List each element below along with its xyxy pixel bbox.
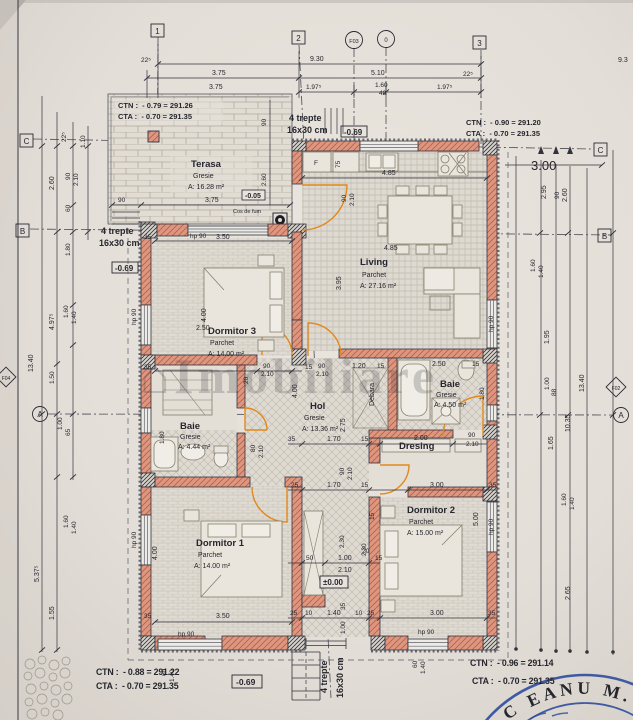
svg-text:1.80: 1.80 xyxy=(479,387,486,400)
svg-text:Dormitor 3: Dormitor 3 xyxy=(208,326,256,337)
svg-text:5.37⁵: 5.37⁵ xyxy=(34,565,41,582)
svg-text:B: B xyxy=(20,227,25,236)
svg-text:1.65: 1.65 xyxy=(548,436,555,450)
svg-text:15: 15 xyxy=(361,436,369,443)
svg-text:1.40: 1.40 xyxy=(538,265,545,278)
svg-text:⌂Imobiliare: ⌂Imobiliare xyxy=(140,348,438,404)
svg-text:C: C xyxy=(598,146,604,155)
svg-text:CTN : - 0.79 = 291.26: CTN : - 0.79 = 291.26 xyxy=(118,101,193,110)
svg-text:2.10: 2.10 xyxy=(347,467,354,480)
svg-text:1.00: 1.00 xyxy=(57,417,64,430)
svg-text:Parchet: Parchet xyxy=(198,552,222,559)
svg-text:2.65: 2.65 xyxy=(565,586,572,600)
svg-text:16x30 cm: 16x30 cm xyxy=(287,125,328,135)
svg-text:4 trepte: 4 trepte xyxy=(289,113,322,123)
svg-text:3.75: 3.75 xyxy=(212,70,226,77)
svg-text:hp 90: hp 90 xyxy=(190,233,207,240)
svg-text:10: 10 xyxy=(355,610,363,617)
svg-text:Baie: Baie xyxy=(180,421,200,432)
svg-text:4.97⁵: 4.97⁵ xyxy=(49,313,56,330)
svg-text:4 trepte: 4 trepte xyxy=(319,660,329,693)
svg-text:5.10: 5.10 xyxy=(371,70,385,77)
svg-text:90: 90 xyxy=(339,467,346,475)
svg-text:22⁵: 22⁵ xyxy=(463,71,473,78)
svg-text:1.60: 1.60 xyxy=(530,259,537,272)
svg-text:22⁵: 22⁵ xyxy=(141,57,151,64)
svg-text:2.60: 2.60 xyxy=(261,173,268,186)
svg-text:1.00: 1.00 xyxy=(544,377,551,390)
svg-text:22⁵: 22⁵ xyxy=(61,132,68,142)
svg-text:2.30: 2.30 xyxy=(339,535,346,548)
svg-text:4.00: 4.00 xyxy=(201,308,208,322)
svg-text:3.00: 3.00 xyxy=(531,158,556,173)
svg-text:B: B xyxy=(602,232,607,241)
svg-text:16x30 cm: 16x30 cm xyxy=(335,657,345,698)
svg-text:±0.00: ±0.00 xyxy=(323,578,344,587)
svg-text:2.60: 2.60 xyxy=(49,176,56,190)
svg-text:35: 35 xyxy=(488,610,496,617)
svg-text:3: 3 xyxy=(477,39,482,48)
svg-text:C: C xyxy=(24,137,30,146)
svg-text:Parchet: Parchet xyxy=(362,272,386,279)
svg-text:hp 90: hp 90 xyxy=(488,315,495,332)
svg-text:hp 90: hp 90 xyxy=(418,629,435,636)
svg-text:1.97⁵: 1.97⁵ xyxy=(306,84,322,91)
svg-text:1.80: 1.80 xyxy=(159,431,166,444)
svg-text:hp 90: hp 90 xyxy=(178,631,195,638)
svg-text:15: 15 xyxy=(472,361,480,368)
svg-text:Terasa: Terasa xyxy=(191,159,222,170)
svg-text:1.10: 1.10 xyxy=(80,135,87,148)
svg-text:CTN : - 0.90 = 291.20: CTN : - 0.90 = 291.20 xyxy=(466,118,541,127)
svg-text:F: F xyxy=(314,160,318,167)
svg-text:1.70: 1.70 xyxy=(327,482,341,489)
svg-text:35: 35 xyxy=(489,482,497,489)
svg-text:F04: F04 xyxy=(2,376,11,382)
svg-text:80: 80 xyxy=(250,444,257,452)
svg-text:Gresie: Gresie xyxy=(193,173,214,180)
svg-text:9.3: 9.3 xyxy=(618,57,628,64)
svg-text:A: 4.44 m²: A: 4.44 m² xyxy=(178,444,211,451)
svg-text:40: 40 xyxy=(379,90,387,97)
svg-text:2.10: 2.10 xyxy=(466,441,479,448)
svg-text:4.00: 4.00 xyxy=(152,546,159,560)
svg-text:A: A xyxy=(618,411,624,420)
svg-text:Parchet: Parchet xyxy=(210,340,234,347)
svg-text:90: 90 xyxy=(468,432,476,439)
svg-text:3.75: 3.75 xyxy=(205,197,219,204)
svg-text:1.60: 1.60 xyxy=(561,493,568,506)
svg-text:13.40: 13.40 xyxy=(28,354,35,372)
svg-text:3.95: 3.95 xyxy=(336,276,343,290)
svg-text:CTN : - 0.96 = 291.14: CTN : - 0.96 = 291.14 xyxy=(470,658,554,668)
svg-text:3.00: 3.00 xyxy=(430,482,444,489)
svg-text:F03: F03 xyxy=(349,39,358,45)
svg-text:35: 35 xyxy=(144,613,152,620)
svg-text:CTN : - 0.88 = 291.22: CTN : - 0.88 = 291.22 xyxy=(96,667,180,677)
svg-text:60: 60 xyxy=(65,204,72,212)
svg-text:25: 25 xyxy=(367,610,375,617)
svg-text:75: 75 xyxy=(335,160,342,168)
svg-text:A: 27.16 m²: A: 27.16 m² xyxy=(360,283,397,290)
svg-text:2.60: 2.60 xyxy=(562,188,569,202)
svg-text:2: 2 xyxy=(296,34,301,43)
svg-text:1.60: 1.60 xyxy=(63,305,70,318)
svg-text:Cos de fum: Cos de fum xyxy=(233,209,262,215)
svg-text:50: 50 xyxy=(306,555,314,562)
svg-text:2.10: 2.10 xyxy=(349,193,356,206)
svg-text:4 trepte: 4 trepte xyxy=(101,226,134,236)
svg-text:1.60: 1.60 xyxy=(375,82,388,89)
svg-text:1.40: 1.40 xyxy=(71,521,78,534)
svg-text:15: 15 xyxy=(361,482,369,489)
svg-text:-0.69: -0.69 xyxy=(115,264,134,273)
svg-text:-0.69: -0.69 xyxy=(236,677,256,687)
svg-text:88: 88 xyxy=(551,388,558,396)
svg-text:1.60: 1.60 xyxy=(63,515,70,528)
svg-text:hp 90: hp 90 xyxy=(131,531,138,548)
svg-text:65: 65 xyxy=(65,428,72,436)
svg-text:35: 35 xyxy=(144,234,152,241)
svg-text:1.00: 1.00 xyxy=(338,555,352,562)
svg-text:10: 10 xyxy=(305,610,313,617)
svg-text:Living: Living xyxy=(360,257,388,268)
svg-text:1.70: 1.70 xyxy=(327,436,341,443)
svg-text:hp 90: hp 90 xyxy=(131,308,138,325)
svg-text:5.00: 5.00 xyxy=(473,512,480,526)
svg-text:35: 35 xyxy=(340,602,347,610)
svg-text:1.55: 1.55 xyxy=(49,606,56,620)
svg-text:90: 90 xyxy=(554,191,561,199)
svg-text:2.10: 2.10 xyxy=(73,173,80,186)
svg-text:Gresie: Gresie xyxy=(436,392,457,399)
svg-text:Dormitor 2: Dormitor 2 xyxy=(407,505,455,516)
svg-text:A: A xyxy=(37,410,43,419)
svg-text:CTA : - 0.70 = 291.35: CTA : - 0.70 = 291.35 xyxy=(96,681,179,691)
svg-text:1.40: 1.40 xyxy=(569,497,576,510)
svg-text:1.50: 1.50 xyxy=(49,371,56,384)
svg-text:1.40: 1.40 xyxy=(71,311,78,324)
svg-text:1: 1 xyxy=(155,27,160,36)
svg-text:1.97⁵: 1.97⁵ xyxy=(437,84,453,91)
svg-text:9.30: 9.30 xyxy=(310,56,324,63)
svg-text:Baie: Baie xyxy=(440,379,460,390)
svg-text:2.95: 2.95 xyxy=(541,185,548,199)
svg-text:25: 25 xyxy=(290,610,298,617)
svg-text:CTA : - 0.70 = 291.35: CTA : - 0.70 = 291.35 xyxy=(472,676,555,686)
svg-text:-0.05: -0.05 xyxy=(245,193,261,200)
svg-text:Parchet: Parchet xyxy=(409,519,433,526)
svg-text:Gresie: Gresie xyxy=(304,415,325,422)
svg-text:2.10: 2.10 xyxy=(258,445,265,458)
svg-text:1.80: 1.80 xyxy=(65,243,72,256)
svg-text:15: 15 xyxy=(375,555,383,562)
svg-text:1.95: 1.95 xyxy=(544,330,551,344)
svg-text:Gresie: Gresie xyxy=(180,434,201,441)
svg-text:A: 4.50 m²: A: 4.50 m² xyxy=(434,402,467,409)
svg-text:60: 60 xyxy=(412,660,419,668)
svg-text:2.10: 2.10 xyxy=(338,567,352,574)
svg-text:A: 16.28 m²: A: 16.28 m² xyxy=(188,184,225,191)
svg-text:A: 14.00 m²: A: 14.00 m² xyxy=(194,563,231,570)
svg-text:1.40: 1.40 xyxy=(327,610,341,617)
svg-text:10.35: 10.35 xyxy=(565,414,572,432)
svg-text:1.40: 1.40 xyxy=(420,661,427,674)
svg-text:CTA : - 0.70 = 291.35: CTA : - 0.70 = 291.35 xyxy=(466,129,540,138)
svg-text:25: 25 xyxy=(291,482,299,489)
svg-text:hp 90: hp 90 xyxy=(488,518,495,535)
svg-text:3.50: 3.50 xyxy=(216,613,230,620)
svg-text:3.00: 3.00 xyxy=(430,610,444,617)
svg-text:A: 15.00 m²: A: 15.00 m² xyxy=(407,530,444,537)
svg-text:90: 90 xyxy=(261,118,268,126)
svg-text:A: 13.36 m²: A: 13.36 m² xyxy=(302,426,339,433)
svg-text:35: 35 xyxy=(288,436,296,443)
svg-text:-0.69: -0.69 xyxy=(344,128,363,137)
svg-text:4.85: 4.85 xyxy=(384,245,398,252)
svg-text:2.30: 2.30 xyxy=(361,543,368,556)
svg-text:4.85: 4.85 xyxy=(382,170,396,177)
svg-text:15: 15 xyxy=(369,512,376,520)
svg-text:1.00: 1.00 xyxy=(340,621,347,634)
svg-text:Dormitor 1: Dormitor 1 xyxy=(196,538,245,549)
svg-text:90: 90 xyxy=(341,194,348,202)
svg-text:13.40: 13.40 xyxy=(579,374,586,392)
svg-text:90: 90 xyxy=(65,172,72,180)
svg-text:CTA : - 0.70 = 291.35: CTA : - 0.70 = 291.35 xyxy=(118,112,192,121)
svg-text:2.75: 2.75 xyxy=(340,418,347,432)
svg-text:Dresing: Dresing xyxy=(399,441,435,452)
svg-text:3.75: 3.75 xyxy=(209,84,223,91)
svg-text:16x30 cm: 16x30 cm xyxy=(99,238,140,248)
svg-text:90: 90 xyxy=(118,197,126,204)
svg-text:3.50: 3.50 xyxy=(216,234,230,241)
